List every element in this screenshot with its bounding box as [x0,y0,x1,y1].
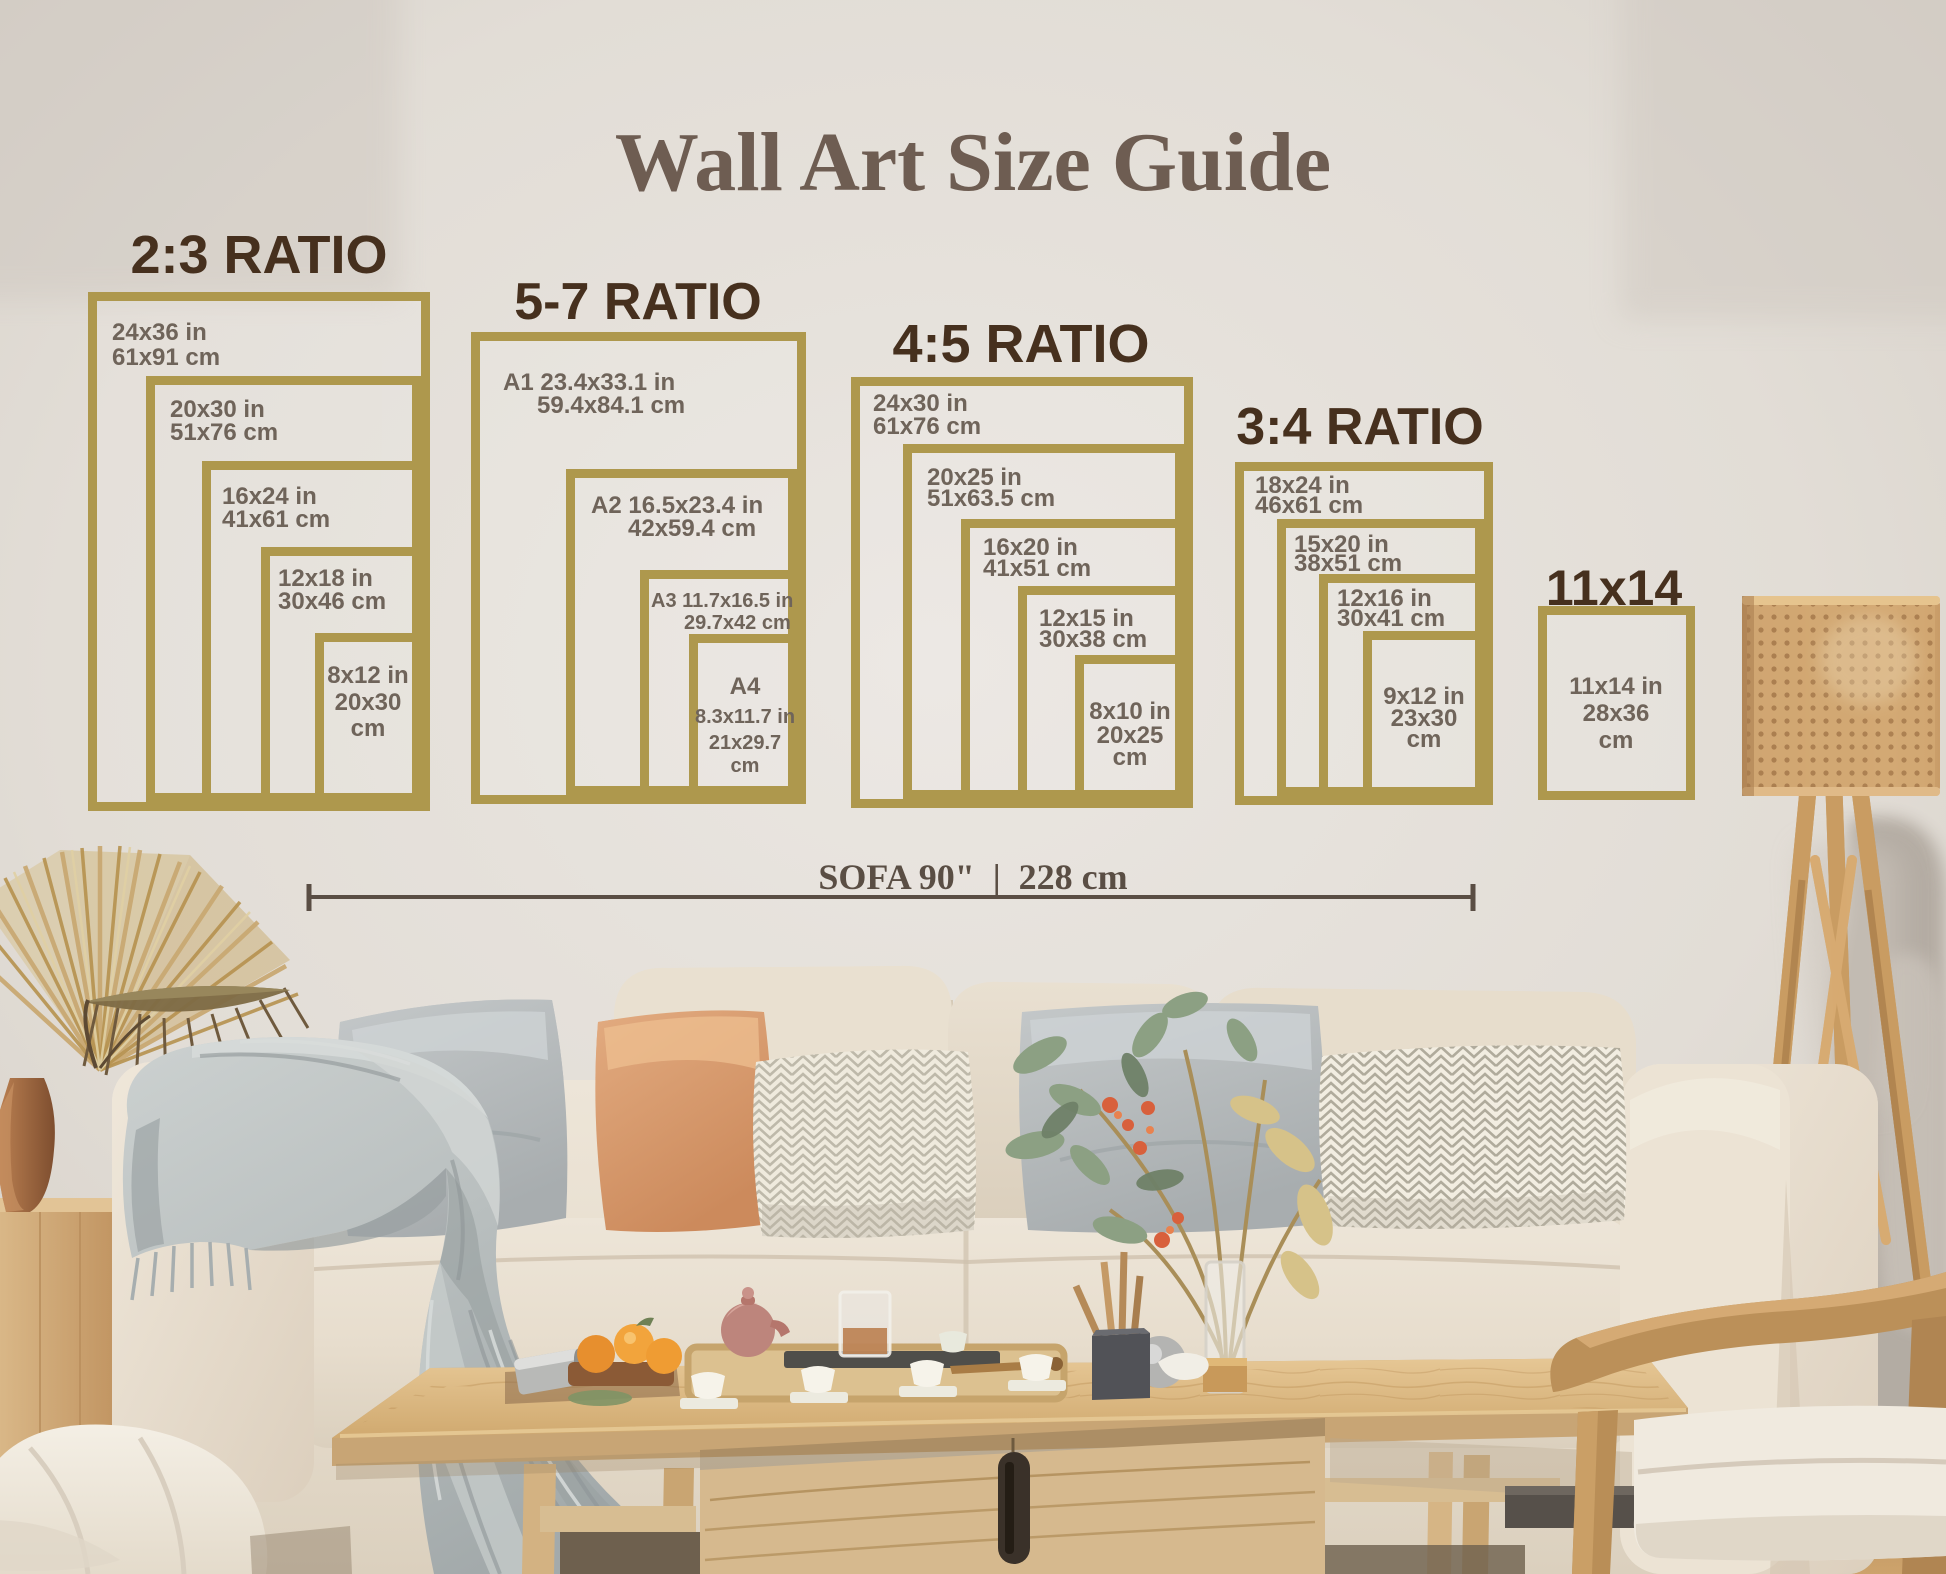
svg-text:20x30: 20x30 [335,689,402,716]
svg-text:46x61 cm: 46x61 cm [1255,492,1363,519]
svg-text:30x38 cm: 30x38 cm [1039,626,1147,653]
svg-text:51x63.5 cm: 51x63.5 cm [927,485,1055,512]
svg-text:21x29.7: 21x29.7 [709,732,781,754]
svg-text:SOFA 90" | 228 cm: SOFA 90" | 228 cm [818,857,1127,897]
svg-text:4:5 RATIO: 4:5 RATIO [892,314,1149,374]
svg-text:41x61 cm: 41x61 cm [222,506,330,533]
svg-text:61x91 cm: 61x91 cm [112,344,220,371]
svg-text:2:3 RATIO: 2:3 RATIO [130,225,387,285]
svg-text:41x51 cm: 41x51 cm [983,555,1091,582]
svg-text:11x14 in: 11x14 in [1569,673,1662,700]
svg-text:24x36 in: 24x36 in [112,319,207,346]
svg-text:8.3x11.7 in: 8.3x11.7 in [695,706,795,728]
svg-text:28x36: 28x36 [1583,700,1650,727]
svg-text:Wall Art Size Guide: Wall Art Size Guide [615,116,1331,209]
svg-text:51x76 cm: 51x76 cm [170,419,278,446]
svg-text:5-7 RATIO: 5-7 RATIO [514,273,762,331]
svg-text:59.4x84.1 cm: 59.4x84.1 cm [537,392,685,419]
svg-text:11x14: 11x14 [1546,560,1682,616]
svg-text:cm: cm [1407,726,1442,753]
svg-text:cm: cm [1113,744,1148,771]
svg-text:3:4 RATIO: 3:4 RATIO [1236,398,1484,456]
svg-text:8x10 in: 8x10 in [1089,698,1170,725]
svg-text:61x76 cm: 61x76 cm [873,413,981,440]
svg-text:cm: cm [351,715,386,742]
svg-text:cm: cm [731,755,760,777]
svg-text:29.7x42 cm: 29.7x42 cm [684,612,791,634]
svg-text:A3 11.7x16.5 in: A3 11.7x16.5 in [651,590,793,612]
svg-text:30x41 cm: 30x41 cm [1337,605,1445,632]
svg-text:42x59.4 cm: 42x59.4 cm [628,515,756,542]
svg-text:38x51 cm: 38x51 cm [1294,550,1402,577]
svg-text:30x46 cm: 30x46 cm [278,588,386,615]
svg-text:8x12 in: 8x12 in [327,662,408,689]
svg-text:A4: A4 [730,673,761,700]
svg-text:cm: cm [1599,727,1634,754]
